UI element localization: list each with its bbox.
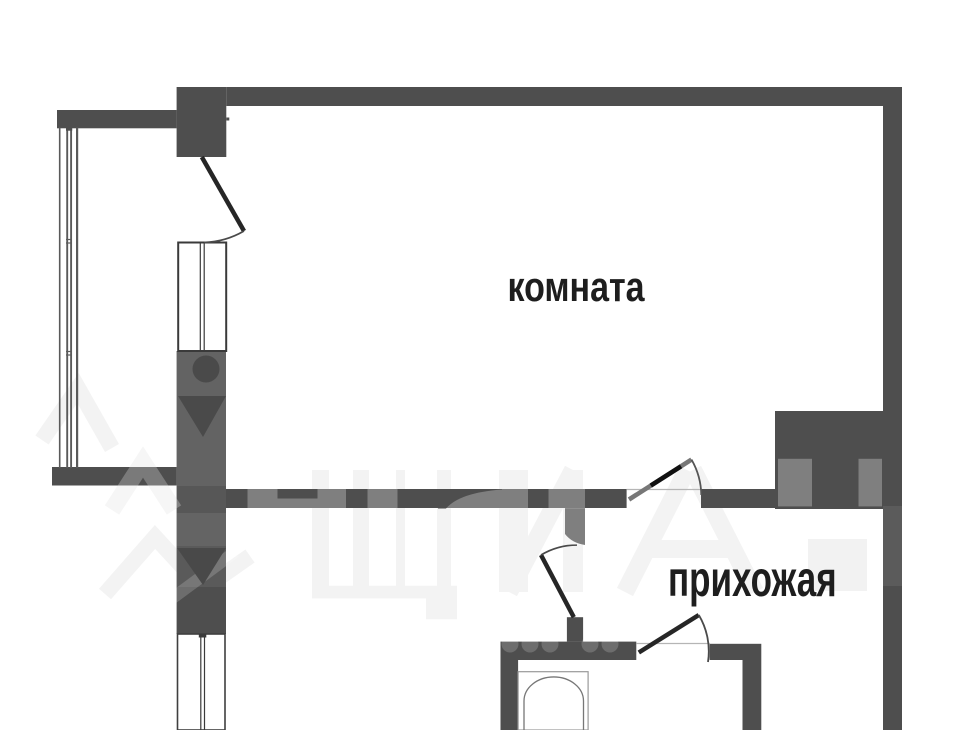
svg-text:комната: комната [508,264,646,311]
svg-text:прихожая: прихожая [668,552,837,608]
